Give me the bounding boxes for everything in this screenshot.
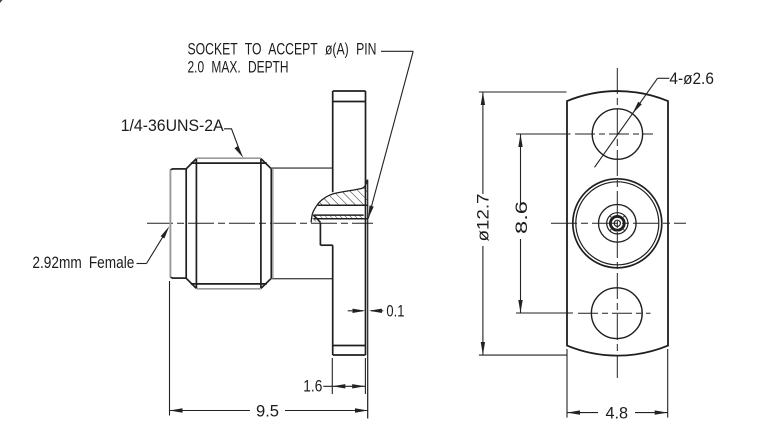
svg-text:1.6: 1.6 [303, 377, 322, 395]
svg-text:1/4-36UNS-2A: 1/4-36UNS-2A [121, 117, 224, 135]
svg-text:4.8: 4.8 [606, 404, 629, 422]
svg-text:2.0 MAX. DEPTH: 2.0 MAX. DEPTH [188, 59, 289, 77]
svg-text:9.5: 9.5 [256, 403, 279, 421]
svg-text:8.6: 8.6 [513, 201, 531, 234]
svg-text:SOCKET TO ACCEPT ø(A) PIN: SOCKET TO ACCEPT ø(A) PIN [188, 41, 377, 59]
svg-text:0.1: 0.1 [386, 303, 404, 321]
svg-text:2.92mm Female: 2.92mm Female [32, 254, 134, 272]
svg-text:ø12.7: ø12.7 [475, 194, 493, 242]
svg-text:4-ø2.6: 4-ø2.6 [669, 70, 714, 88]
